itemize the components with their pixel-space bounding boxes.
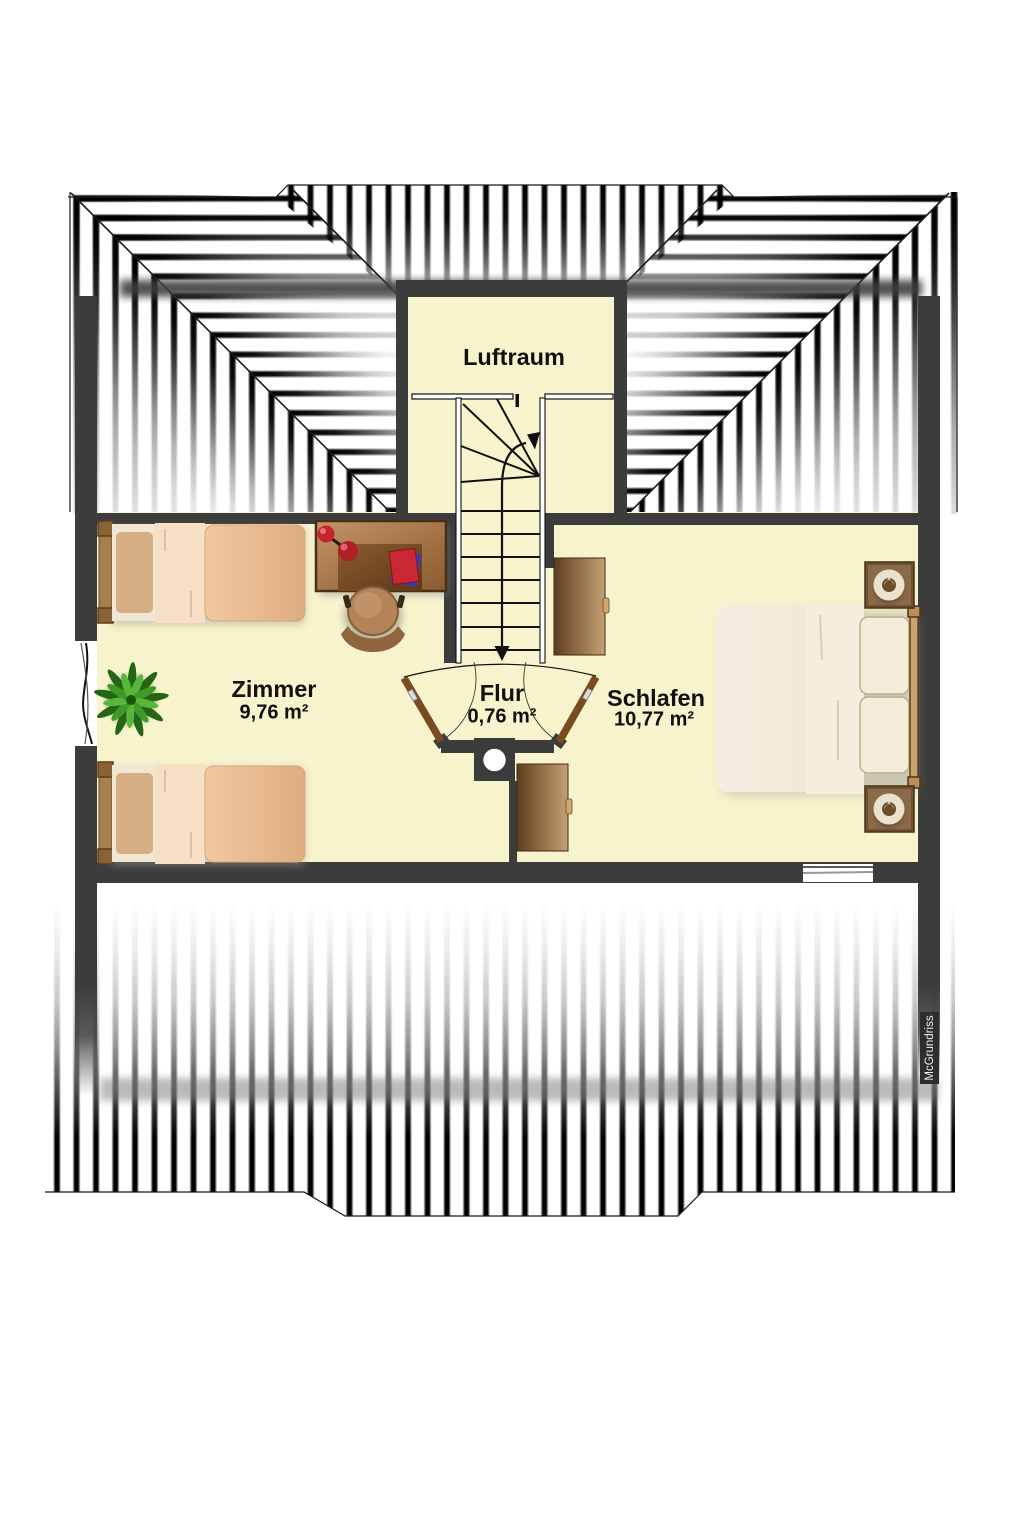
svg-text:Schlafen: Schlafen (607, 685, 705, 711)
svg-text:Zimmer: Zimmer (232, 676, 317, 702)
svg-text:0,76 m²: 0,76 m² (468, 706, 537, 728)
svg-text:Flur: Flur (480, 680, 524, 706)
svg-text:McGrundriss: McGrundriss (924, 1015, 936, 1080)
svg-text:9,76 m²: 9,76 m² (240, 702, 309, 724)
svg-text:Luftraum: Luftraum (463, 344, 565, 370)
svg-text:10,77 m²: 10,77 m² (614, 709, 694, 731)
